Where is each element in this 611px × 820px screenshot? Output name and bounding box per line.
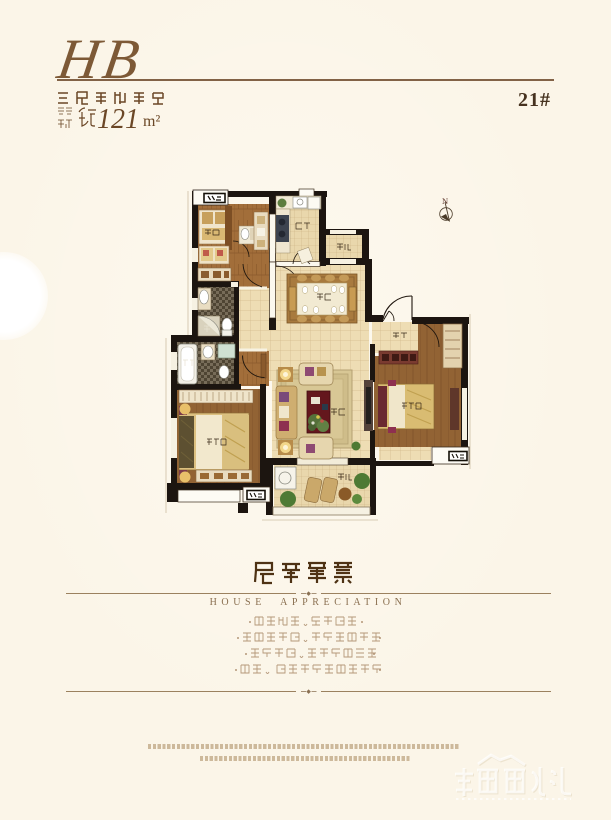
svg-text:N: N bbox=[442, 196, 448, 206]
